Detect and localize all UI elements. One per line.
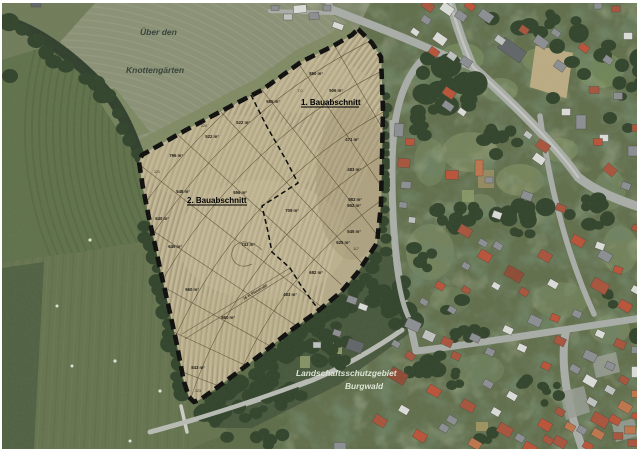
svg-text:Burgwald: Burgwald — [345, 381, 384, 391]
svg-text:Landschaftsschutzgebiet: Landschaftsschutzgebiet — [296, 368, 398, 378]
svg-text:Knottengärten: Knottengärten — [126, 65, 184, 75]
svg-text:Über den: Über den — [140, 27, 177, 37]
svg-text:1. Bauabschnitt: 1. Bauabschnitt — [301, 98, 361, 107]
svg-text:2. Bauabschnitt: 2. Bauabschnitt — [187, 196, 247, 205]
